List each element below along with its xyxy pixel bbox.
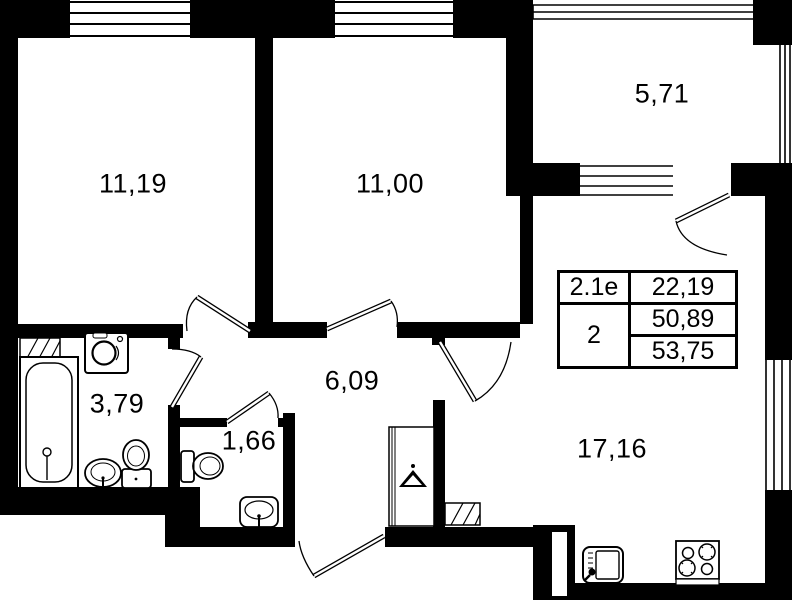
apartment-info-table: 2.1e 22,19 2 50,89 53,75 <box>557 270 738 369</box>
kitchen-sink-icon <box>583 547 623 583</box>
wc-toilet-icon <box>181 451 223 482</box>
wall-niche <box>552 532 567 596</box>
wc-sink-icon <box>240 497 278 527</box>
room-count-cell: 2 <box>559 304 630 368</box>
bathtub-icon <box>20 357 78 488</box>
table-row: 2.1e 22,19 <box>559 272 737 304</box>
wardrobe <box>389 427 434 526</box>
washing-machine-icon <box>85 333 128 373</box>
room-area-label-kitchen-living: 17,16 <box>577 434 647 465</box>
floor-plan: 11,19 11,00 5,71 6,09 3,79 1,66 17,16 2.… <box>0 0 799 600</box>
room-area-label-wc: 1,66 <box>222 426 277 457</box>
unit-type-cell: 2.1e <box>559 272 630 304</box>
vent-shaft-hallway <box>445 503 480 525</box>
area-total-cell: 53,75 <box>630 336 737 368</box>
room-area-label-balcony: 5,71 <box>635 79 690 110</box>
room-area-label-bathroom: 3,79 <box>90 389 145 420</box>
toilet-icon <box>122 440 151 488</box>
area-main-cell: 50,89 <box>630 304 737 336</box>
living-area-cell: 22,19 <box>630 272 737 304</box>
room-area-label-bedroom1: 11,19 <box>99 169 167 200</box>
stove-icon <box>676 541 719 585</box>
room-area-label-bedroom2: 11,00 <box>356 169 424 200</box>
room-area-label-hallway: 6,09 <box>325 366 380 397</box>
table-row: 2 50,89 <box>559 304 737 336</box>
